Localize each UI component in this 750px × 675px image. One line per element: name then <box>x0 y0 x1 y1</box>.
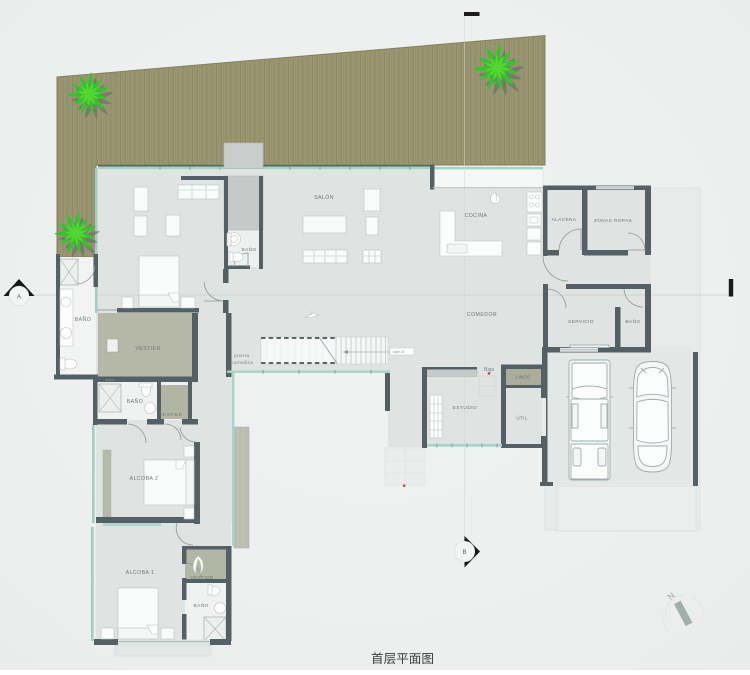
svg-text:BAÑO: BAÑO <box>194 602 209 609</box>
svg-text:ALCOBA 1: ALCOBA 1 <box>126 570 155 576</box>
svg-text:ALACENA: ALACENA <box>552 217 577 223</box>
svg-text:B: B <box>462 550 466 556</box>
svg-text:BAÑO: BAÑO <box>127 398 144 405</box>
svg-text:BANCA: BANCA <box>105 378 115 382</box>
svg-text:BAÑO: BAÑO <box>242 246 257 253</box>
svg-text:corrediza: corrediza <box>231 360 253 366</box>
svg-text:VESTIER: VESTIER <box>191 575 214 581</box>
svg-text:Baja: Baja <box>484 367 494 373</box>
svg-text:ÚTIL: ÚTIL <box>516 415 527 421</box>
svg-text:LINOS: LINOS <box>516 375 530 380</box>
svg-text:puerta: puerta <box>234 353 249 359</box>
svg-text:sube 16: sube 16 <box>393 350 405 354</box>
svg-text:BAÑO: BAÑO <box>75 316 92 323</box>
svg-text:SERVICIO: SERVICIO <box>568 319 594 325</box>
svg-text:COCINA: COCINA <box>465 213 488 219</box>
svg-text:VESTIER: VESTIER <box>160 412 183 418</box>
svg-text:A: A <box>17 294 21 300</box>
svg-text:BAÑO: BAÑO <box>626 318 641 325</box>
svg-text:ZONAS ROPAS: ZONAS ROPAS <box>594 218 632 224</box>
svg-text:SALÓN: SALÓN <box>314 194 334 201</box>
svg-text:ALCOBA 2: ALCOBA 2 <box>130 476 159 482</box>
svg-text:ESTUDIO: ESTUDIO <box>453 405 477 411</box>
svg-text:VESTIER: VESTIER <box>135 346 160 352</box>
svg-text:COMEDOR: COMEDOR <box>467 312 497 318</box>
